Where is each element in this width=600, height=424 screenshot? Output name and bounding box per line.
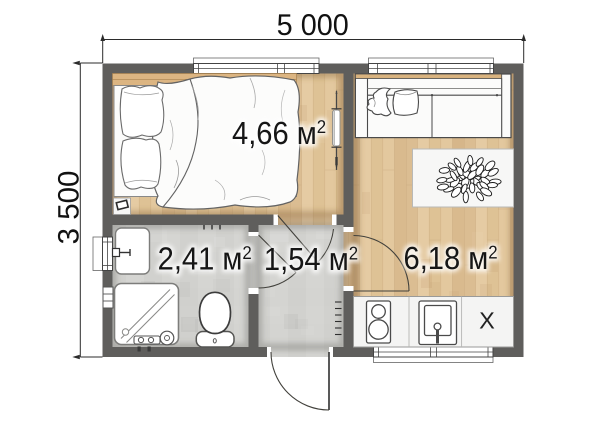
svg-text:X: X: [479, 308, 495, 334]
svg-text:3 500: 3 500: [53, 171, 86, 245]
svg-text:2,41 м2: 2,41 м2: [158, 241, 252, 277]
svg-text:6,18 м2: 6,18 м2: [404, 240, 498, 276]
svg-text:1,54 м2: 1,54 м2: [264, 241, 358, 277]
svg-text:4,66 м2: 4,66 м2: [232, 115, 326, 151]
svg-text:5 000: 5 000: [277, 9, 349, 42]
